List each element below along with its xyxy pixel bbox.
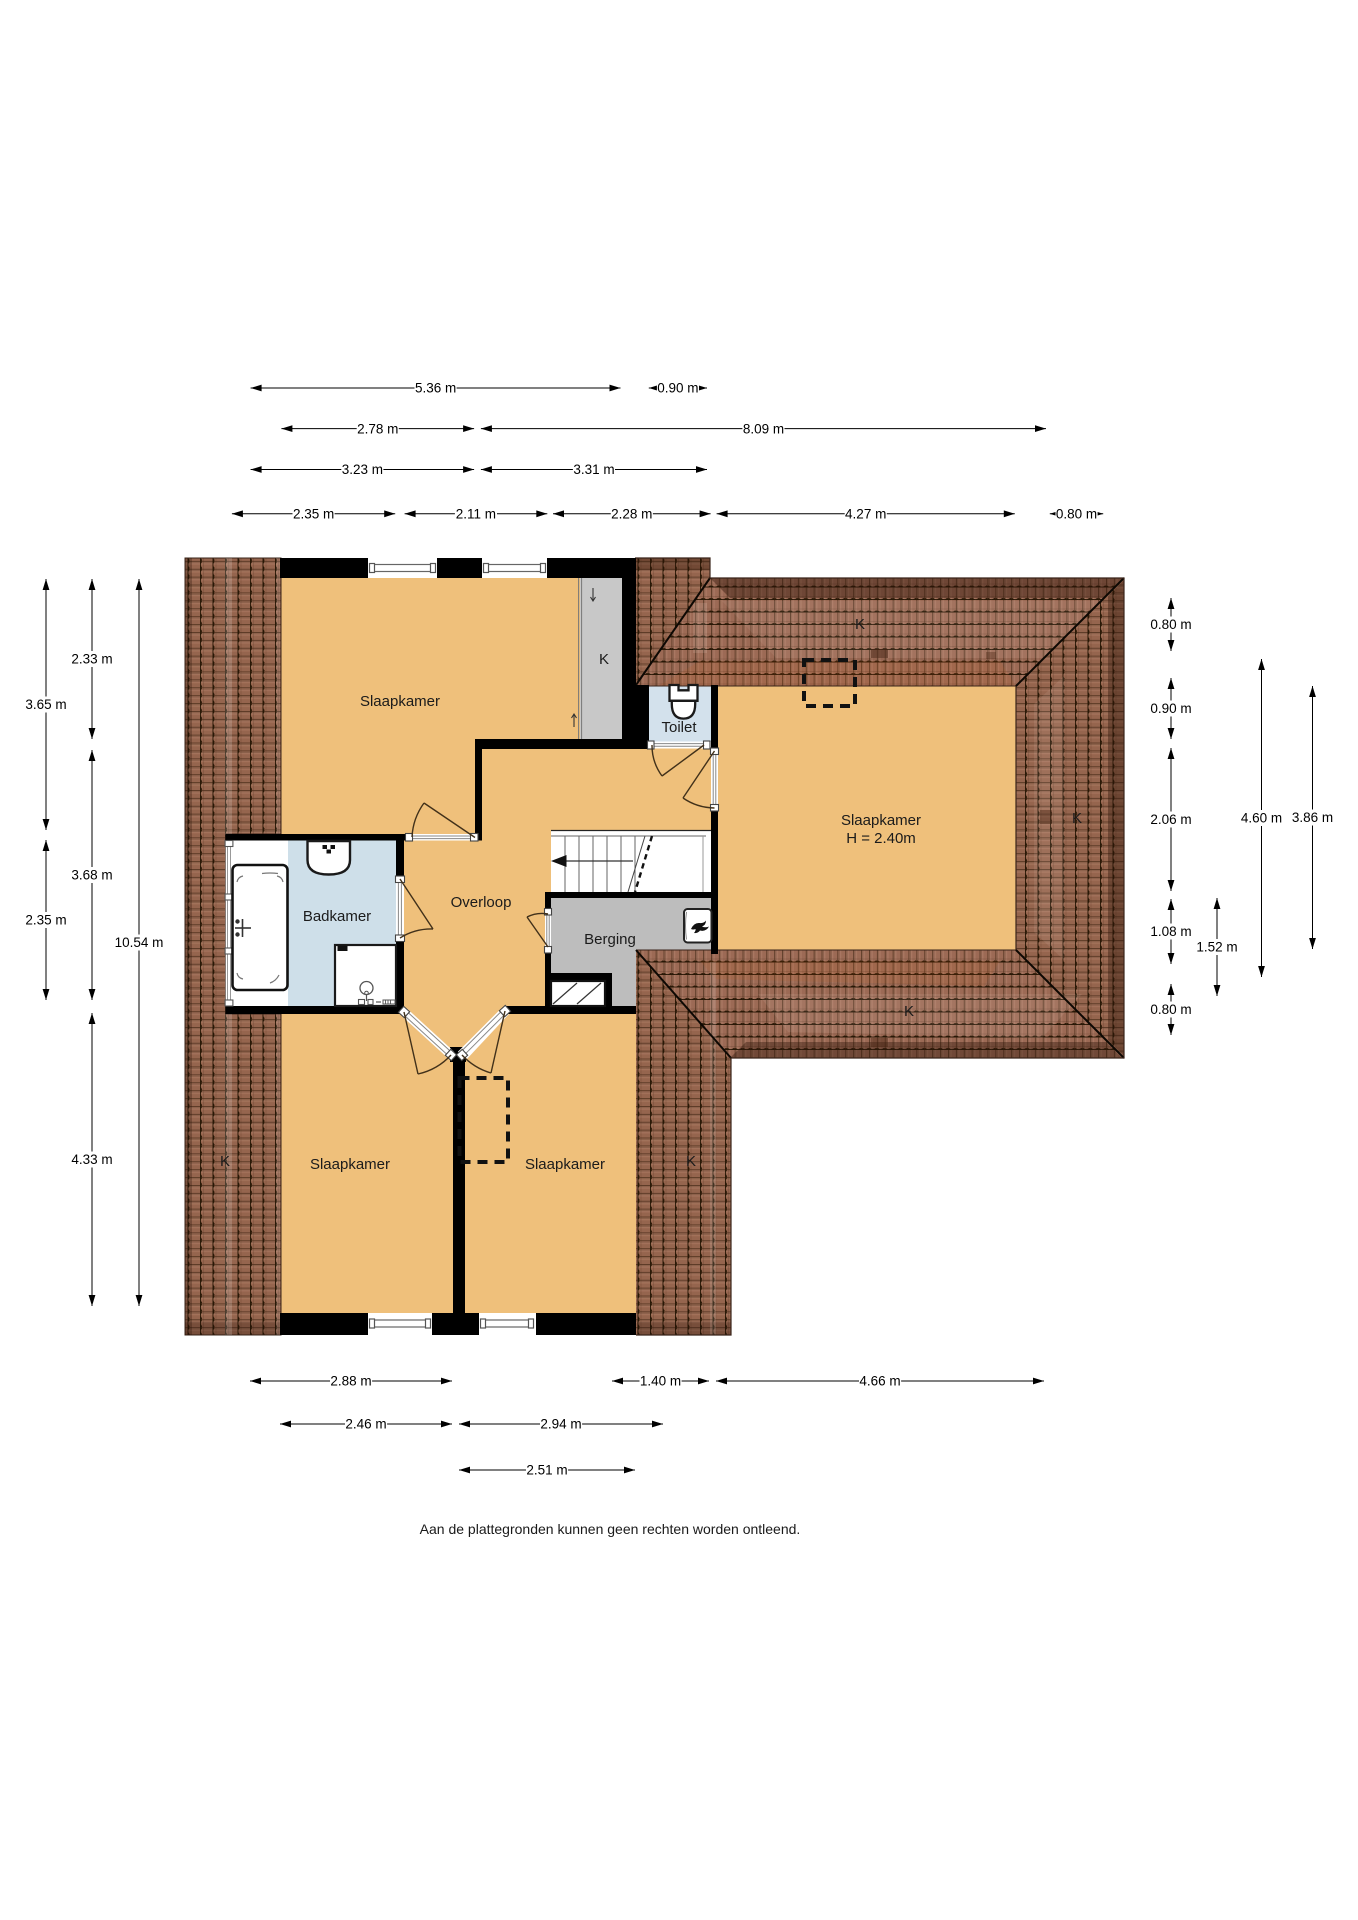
- svg-text:4.33 m: 4.33 m: [71, 1152, 112, 1167]
- svg-text:0.80 m: 0.80 m: [1150, 617, 1191, 632]
- svg-text:Berging: Berging: [584, 931, 636, 948]
- svg-text:3.31 m: 3.31 m: [573, 462, 614, 477]
- svg-text:K: K: [220, 1153, 230, 1170]
- svg-text:2.94 m: 2.94 m: [540, 1417, 581, 1432]
- svg-text:1.08 m: 1.08 m: [1150, 924, 1191, 939]
- svg-text:0.90 m: 0.90 m: [657, 381, 698, 396]
- svg-text:2.06 m: 2.06 m: [1150, 812, 1191, 827]
- svg-text:2.33 m: 2.33 m: [71, 652, 112, 667]
- svg-text:1.40 m: 1.40 m: [640, 1374, 681, 1389]
- svg-text:3.86 m: 3.86 m: [1292, 810, 1333, 825]
- svg-text:10.54 m: 10.54 m: [115, 935, 164, 950]
- svg-text:4.27 m: 4.27 m: [845, 507, 886, 522]
- svg-text:H = 2.40m: H = 2.40m: [846, 830, 916, 847]
- svg-text:Slaapkamer: Slaapkamer: [310, 1156, 390, 1173]
- svg-text:2.35 m: 2.35 m: [293, 507, 334, 522]
- svg-text:Slaapkamer: Slaapkamer: [360, 693, 440, 710]
- svg-text:2.11 m: 2.11 m: [456, 507, 496, 522]
- svg-text:Slaapkamer: Slaapkamer: [525, 1156, 605, 1173]
- svg-text:3.65 m: 3.65 m: [25, 697, 66, 712]
- svg-text:4.60 m: 4.60 m: [1241, 811, 1282, 826]
- svg-text:2.78 m: 2.78 m: [357, 421, 398, 436]
- svg-text:Toilet: Toilet: [661, 719, 697, 736]
- svg-text:K: K: [599, 651, 609, 668]
- svg-text:2.88 m: 2.88 m: [330, 1374, 371, 1389]
- svg-text:K: K: [855, 616, 865, 633]
- svg-text:0.80 m: 0.80 m: [1150, 1002, 1191, 1017]
- svg-text:Slaapkamer: Slaapkamer: [841, 812, 921, 829]
- svg-text:K: K: [904, 1003, 914, 1020]
- svg-text:2.35 m: 2.35 m: [25, 913, 66, 928]
- svg-text:K: K: [1072, 810, 1082, 827]
- svg-text:0.90 m: 0.90 m: [1150, 701, 1191, 716]
- svg-text:Aan de plattegronden kunnen ge: Aan de plattegronden kunnen geen rechten…: [420, 1521, 801, 1537]
- svg-text:Overloop: Overloop: [451, 894, 512, 911]
- svg-text:3.23 m: 3.23 m: [342, 462, 383, 477]
- svg-text:1.52 m: 1.52 m: [1196, 940, 1237, 955]
- svg-text:2.28 m: 2.28 m: [611, 507, 652, 522]
- svg-text:8.09 m: 8.09 m: [743, 421, 784, 436]
- svg-text:2.46 m: 2.46 m: [345, 1417, 386, 1432]
- svg-text:Badkamer: Badkamer: [303, 908, 371, 925]
- svg-text:5.36 m: 5.36 m: [415, 381, 456, 396]
- svg-text:3.68 m: 3.68 m: [71, 868, 112, 883]
- svg-text:2.51 m: 2.51 m: [526, 1463, 567, 1478]
- svg-text:4.66 m: 4.66 m: [859, 1374, 900, 1389]
- svg-text:K: K: [686, 1153, 696, 1170]
- svg-text:0.80 m: 0.80 m: [1056, 507, 1097, 522]
